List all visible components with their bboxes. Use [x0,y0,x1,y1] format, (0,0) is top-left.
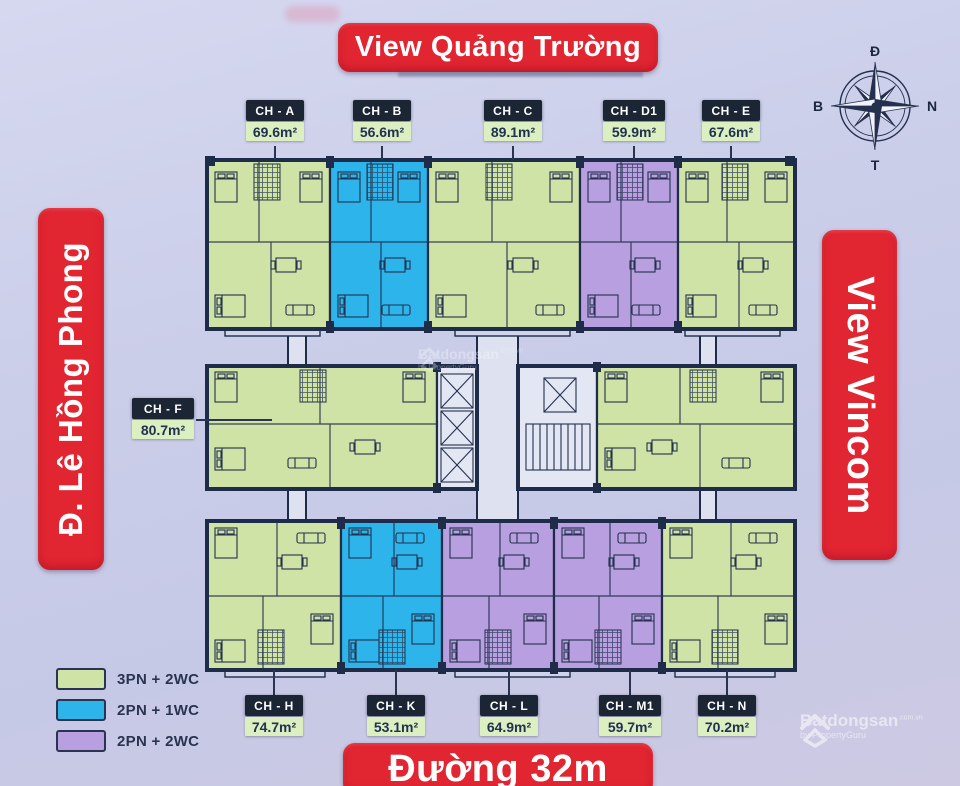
view-square-label: View Quảng Trường [355,31,641,64]
pointer-ch-c [512,146,514,160]
unit-id: CH - F [132,398,194,419]
pointer-ch-n [726,670,728,695]
street-left-label: Đ. Lê Hồng Phong [52,242,90,536]
unit-id: CH - E [702,100,760,121]
watermark-suffix: .com.vn [499,348,524,355]
compass-north-label: B [813,98,823,114]
unit-id: CH - D1 [603,100,665,121]
unit-label-ch-d1: CH - D1 59.9m² [603,100,665,141]
pointer-ch-l [508,670,510,695]
unit-label-ch-m1: CH - M1 59.7m² [599,695,661,736]
unit-area: 59.7m² [599,717,661,736]
floor-plan-page: Đ N T B View Quảng Trường Đ. Lê Hồng Pho… [0,0,960,786]
unit-label-ch-e: CH - E 67.6m² [702,100,760,141]
unit-area: 64.9m² [480,717,538,736]
pointer-ch-b [381,146,383,160]
unit-label-ch-k: CH - K 53.1m² [367,695,425,736]
unit-area: 53.1m² [367,717,425,736]
unit-label-ch-f: CH - F 80.7m² [132,398,194,439]
unit-id: CH - N [698,695,756,716]
legend-label: 2PN + 2WC [117,733,199,750]
unit-area: 74.7m² [245,717,303,736]
wing-bottom [207,517,795,677]
pointer-ch-d1 [633,146,635,160]
batdongsan-logo-icon [800,712,830,748]
unit-id: CH - K [367,695,425,716]
street-bottom-label: Đường 32m [388,748,608,786]
legend-label: 3PN + 2WC [117,671,199,688]
unit-label-ch-l: CH - L 64.9m² [480,695,538,736]
legend-label: 2PN + 1WC [117,702,199,719]
legend-row-2pn1wc: 2PN + 1WC [56,699,199,721]
pink-smudge [285,6,340,22]
view-square-banner: View Quảng Trường [338,23,658,72]
unit-label-ch-a: CH - A 69.6m² [246,100,304,141]
pointer-ch-a [274,146,276,160]
street-left-banner: Đ. Lê Hồng Phong [38,208,104,570]
pointer-ch-h [273,670,275,695]
unit-id: CH - C [484,100,542,121]
pointer-ch-e [730,146,732,160]
legend-row-2pn2wc: 2PN + 2WC [56,730,199,752]
view-vincom-label: View Vincom [838,276,881,515]
legend: 3PN + 2WC 2PN + 1WC 2PN + 2WC [56,668,199,761]
unit-id: CH - H [245,695,303,716]
pointer-ch-k [395,670,397,695]
unit-area: 67.6m² [702,122,760,141]
unit-area: 70.2m² [698,717,756,736]
compass-rose: Đ N T B [813,43,937,173]
batdongsan-logo-icon [418,346,440,372]
unit-id: CH - M1 [599,695,661,716]
unit-id: CH - B [353,100,411,121]
watermark-suffix: .com.vn [898,715,923,722]
unit-label-ch-n: CH - N 70.2m² [698,695,756,736]
legend-swatch-purple [56,730,106,752]
unit-area: 69.6m² [246,122,304,141]
wing-top [205,156,795,336]
compass-east-label: Đ [870,43,880,59]
unit-area: 89.1m² [484,122,542,141]
legend-row-3pn2wc: 3PN + 2WC [56,668,199,690]
watermark-center: Batdongsan.com.vn by PropertyGuru [418,346,523,372]
unit-id: CH - A [246,100,304,121]
legend-swatch-green [56,668,106,690]
unit-area: 80.7m² [132,420,194,439]
obscured-text-smudge [398,71,643,77]
view-vincom-banner: View Vincom [822,230,897,560]
pointer-ch-m1 [629,670,631,695]
unit-label-ch-h: CH - H 74.7m² [245,695,303,736]
pointer-ch-f [196,419,272,421]
unit-id: CH - L [480,695,538,716]
watermark-bottom-right: Batdongsan.com.vn by PropertyGuru [800,712,923,741]
unit-area: 56.6m² [353,122,411,141]
unit-area: 59.9m² [603,122,665,141]
compass-west-label: T [871,157,880,173]
street-bottom-banner: Đường 32m [343,743,653,786]
compass-south-label: N [927,98,937,114]
unit-label-ch-b: CH - B 56.6m² [353,100,411,141]
legend-swatch-blue [56,699,106,721]
unit-label-ch-c: CH - C 89.1m² [484,100,542,141]
